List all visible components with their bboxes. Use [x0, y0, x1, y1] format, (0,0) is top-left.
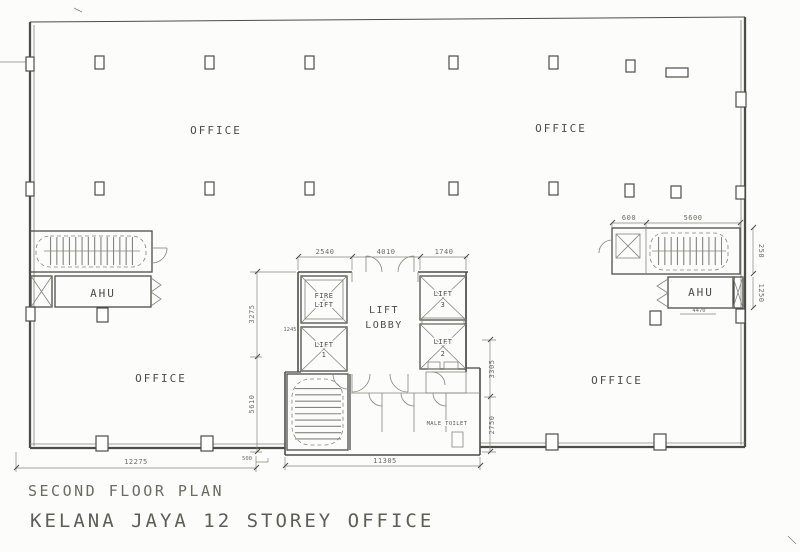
- door-arc: [152, 248, 167, 263]
- fire-lift-shaft: FIRE LIFT: [301, 276, 347, 323]
- office-label-top-right: OFFICE: [535, 122, 587, 135]
- lift-3-number: 3: [441, 301, 446, 309]
- fire-lift-label-2: LIFT: [315, 301, 334, 309]
- door-arc: [432, 372, 445, 385]
- lift-2-number: 2: [441, 350, 446, 358]
- dim-core-bottom-width: 11305: [373, 457, 397, 465]
- project-title: KELANA JAYA 12 STOREY OFFICE: [30, 510, 434, 532]
- core-staircase: [287, 374, 348, 450]
- dim-core-left-upper: 3275: [248, 305, 256, 324]
- lift-lobby-label-2: LOBBY: [365, 320, 403, 331]
- dim-core-top-right: 1740: [435, 248, 454, 256]
- male-toilet-label: MALE TOILET: [427, 421, 468, 427]
- lift-1-number: 1: [322, 351, 327, 359]
- office-label-bottom-right: OFFICE: [591, 374, 643, 387]
- office-label-bottom-left: OFFICE: [135, 372, 187, 385]
- lift-core: FIRE LIFT LIFT 1 LIFT 3 LIFT 2 LIFT LOBB…: [298, 256, 468, 372]
- dim-right-edge-ahu: 1250: [757, 284, 765, 303]
- dim-left-wing-width: 12275: [124, 458, 148, 466]
- dim-core-top-mid: 4010: [377, 248, 396, 256]
- dim-core-top-left: 2540: [316, 248, 335, 256]
- lobby-entrance-doors: [366, 256, 414, 272]
- dim-core-left-lower: 5610: [248, 395, 256, 414]
- door-arc: [599, 240, 612, 253]
- stall-doors: [369, 393, 446, 406]
- lift-1-label: LIFT: [315, 341, 334, 349]
- dim-lift1-width: 1245: [283, 327, 296, 333]
- floor-plan-drawing: AHU AHU 4470 FIRE LIFT: [0, 0, 800, 552]
- dim-right-stair-width: 5600: [684, 214, 703, 222]
- dim-right-edge-stair: 250: [757, 244, 765, 258]
- title-block: SECOND FLOOR PLAN KELANA JAYA 12 STOREY …: [28, 482, 434, 532]
- fire-lift-label-1: FIRE: [315, 292, 334, 300]
- lift-1-shaft: LIFT 1: [301, 327, 347, 371]
- wc-fixture: [452, 432, 463, 447]
- right-staircase: [599, 228, 740, 274]
- ahu-label-right: AHU: [688, 286, 714, 299]
- toilet-block: MALE TOILET: [350, 374, 480, 450]
- dim-core-right-lower: 2750: [488, 416, 496, 435]
- door-arc: [333, 374, 348, 389]
- lift-3-shaft: LIFT 3: [420, 276, 466, 320]
- lift-lobby-label-1: LIFT: [369, 305, 399, 316]
- dim-core-bottom-offset: 500: [242, 456, 252, 462]
- double-door: [151, 278, 161, 306]
- corridor-doors: [352, 374, 408, 392]
- plan-title: SECOND FLOOR PLAN: [28, 482, 224, 500]
- lift-2-label: LIFT: [434, 338, 453, 346]
- office-label-top-left: OFFICE: [190, 124, 242, 137]
- dim-right-ahu-width: 4470: [692, 308, 705, 314]
- service-rooms: [426, 362, 466, 393]
- dim-core-right-upper: 3305: [488, 360, 496, 379]
- lower-core: MALE TOILET: [285, 362, 480, 455]
- dim-right-stair-offset: 600: [622, 214, 636, 222]
- ahu-label-left: AHU: [90, 287, 116, 300]
- lift-2-shaft: LIFT 2: [420, 318, 466, 369]
- right-ahu-room: AHU 4470: [657, 277, 743, 314]
- floor-plan-sheet: AHU AHU 4470 FIRE LIFT: [0, 0, 800, 552]
- lift-3-label: LIFT: [434, 290, 453, 298]
- double-door: [657, 279, 668, 307]
- left-ahu-room: AHU: [31, 276, 161, 307]
- left-staircase: [30, 231, 167, 272]
